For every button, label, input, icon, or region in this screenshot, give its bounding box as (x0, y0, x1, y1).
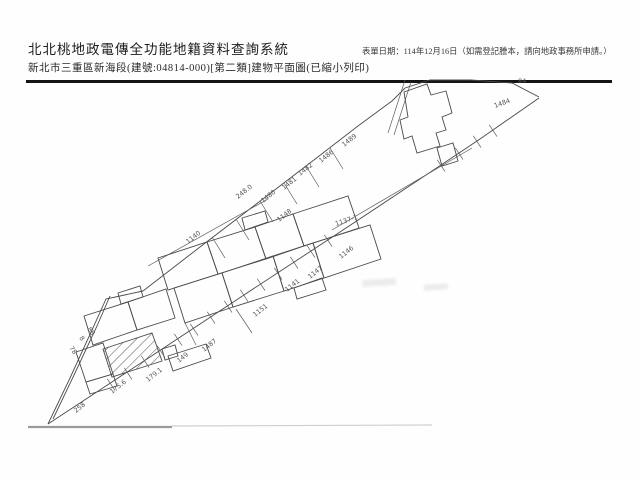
svg-text:179.1: 179.1 (144, 366, 164, 384)
building-cluster-upper-right (400, 84, 458, 166)
svg-text:1489: 1489 (340, 132, 358, 148)
svg-text:1141: 1141 (283, 277, 301, 293)
svg-text:248.0: 248.0 (234, 183, 254, 201)
svg-text:1146: 1146 (337, 244, 355, 260)
internal-parcel-lines (148, 80, 472, 345)
svg-text:1481: 1481 (280, 175, 298, 191)
scanned-cadastral-document: 北北桃地政電傳全功能地籍資料查詢系統 新北市三重區新海段(建號:04814-00… (0, 0, 640, 480)
building-plan-map: 14891486148214811480248.0148484114011481… (0, 0, 640, 480)
svg-text:175.6: 175.6 (108, 378, 128, 396)
svg-text:1140: 1140 (184, 229, 202, 245)
svg-text:1148: 1148 (275, 207, 293, 223)
svg-text:1484: 1484 (493, 97, 511, 110)
svg-text:1487: 1487 (200, 337, 218, 353)
svg-text:1486: 1486 (317, 148, 335, 164)
parcel-division-marks (212, 148, 343, 258)
svg-text:1137-1: 1137-1 (334, 213, 358, 228)
svg-text:84: 84 (518, 77, 526, 85)
ghost-marks (362, 278, 448, 291)
svg-text:8: 8 (77, 335, 86, 343)
svg-text:1151: 1151 (251, 302, 269, 318)
svg-text:258: 258 (72, 401, 87, 415)
boundary-tick-marks (107, 125, 497, 391)
scan-fold-line (28, 425, 432, 427)
